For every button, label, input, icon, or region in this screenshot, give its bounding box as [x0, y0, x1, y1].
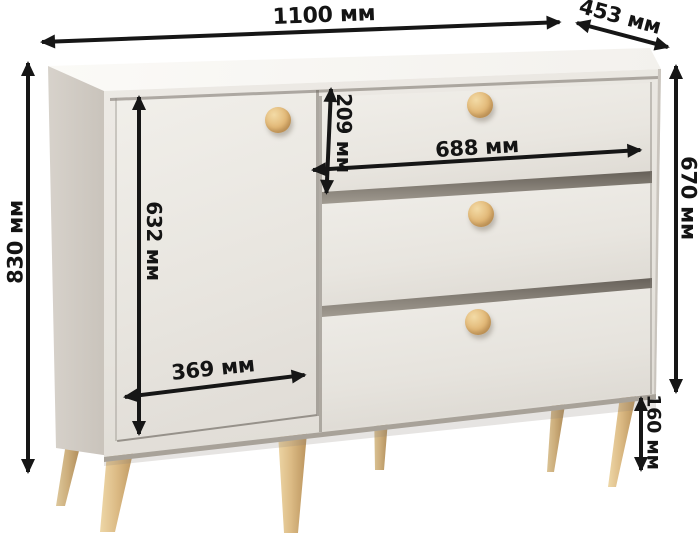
drawer-gap-left	[319, 96, 322, 432]
dim-label-drawer-height: 209 мм	[334, 93, 354, 173]
leg-front-center	[277, 433, 308, 533]
door-knob	[265, 107, 291, 133]
cabinet-right-inner-line	[650, 82, 652, 394]
drawer-top-knob	[467, 92, 493, 118]
furniture-dimensions-image: 1100 мм 453 мм 830 мм 670 мм 160 мм 632 …	[0, 0, 700, 540]
dim-label-total-height: 830 мм	[6, 200, 27, 284]
door-gap-left	[115, 98, 117, 441]
dim-label-total-width: 1100 мм	[272, 3, 376, 29]
dim-label-leg-height: 160 мм	[644, 394, 663, 470]
dim-arrow-door-height	[137, 97, 141, 434]
leg-back-left	[56, 443, 82, 506]
drawer-bottom-knob	[465, 309, 491, 335]
drawer-middle-knob	[468, 201, 494, 227]
dim-label-cabinet-height: 670 мм	[678, 156, 699, 240]
dresser-left-side-panel	[48, 66, 110, 456]
dim-label-drawer-width: 688 мм	[435, 135, 520, 161]
dim-label-door-height: 632 мм	[144, 201, 164, 281]
